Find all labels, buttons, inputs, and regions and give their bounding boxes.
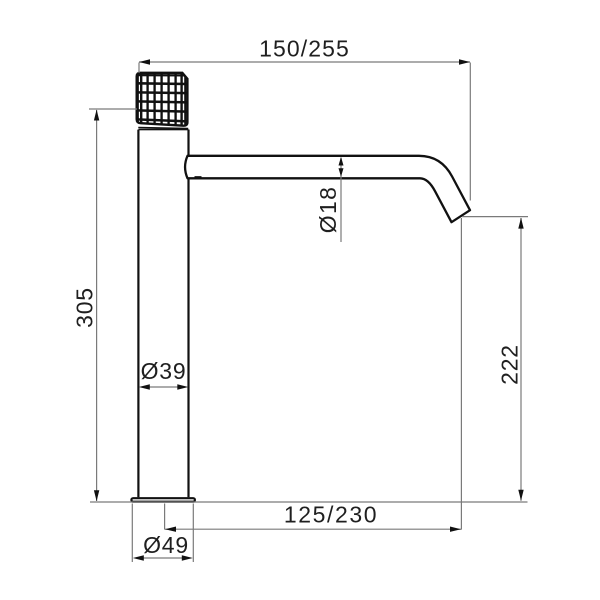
- svg-text:150/255: 150/255: [259, 36, 350, 62]
- svg-text:Ø49: Ø49: [143, 532, 189, 558]
- svg-text:125/230: 125/230: [284, 501, 378, 527]
- svg-text:Ø39: Ø39: [141, 358, 187, 384]
- svg-text:222: 222: [497, 344, 523, 385]
- svg-text:305: 305: [71, 287, 97, 328]
- svg-text:Ø18: Ø18: [315, 186, 341, 233]
